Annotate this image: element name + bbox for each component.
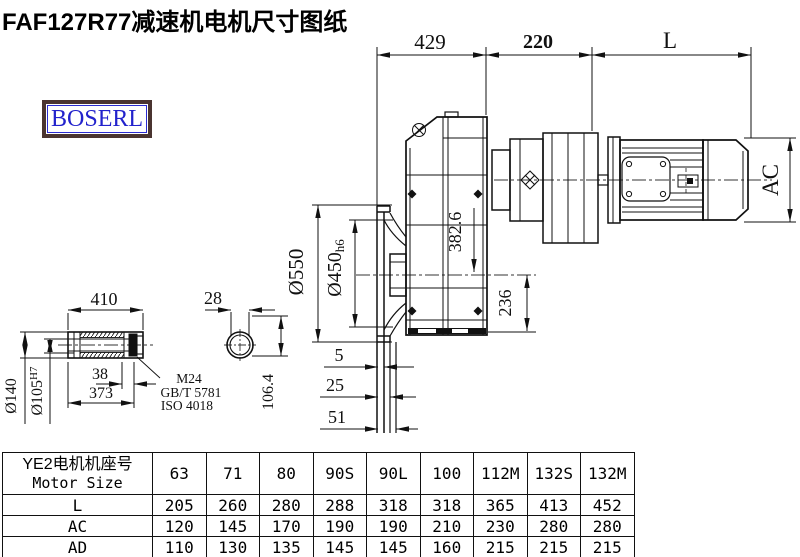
table-row-AD: AD 110 130 135 145 145 160 215 215 215	[3, 537, 635, 557]
hollow-shaft-detail	[68, 332, 160, 378]
row-label-L: L	[3, 495, 153, 516]
col-90S: 90S	[313, 453, 367, 495]
col-71: 71	[206, 453, 260, 495]
col-112M: 112M	[474, 453, 528, 495]
cell: 160	[420, 537, 474, 557]
dim-106-4: 106.4	[260, 374, 277, 410]
dim-236: 236	[495, 290, 515, 317]
input-adapter	[492, 133, 608, 243]
cell: 120	[153, 516, 207, 537]
dim-105H7: Ø105H7	[28, 366, 46, 416]
dim-AC: AC	[758, 164, 783, 196]
dim-450h6: Ø450h6	[324, 239, 347, 297]
cell: 170	[260, 516, 314, 537]
cell: 135	[260, 537, 314, 557]
cell: 215	[581, 537, 635, 557]
dim-5: 5	[335, 345, 344, 365]
row-label-AC: AC	[3, 516, 153, 537]
cell: 280	[527, 516, 581, 537]
cell: 288	[313, 495, 367, 516]
cell: 145	[367, 537, 421, 557]
table-row-AC: AC 120 145 170 190 190 210 230 280 280	[3, 516, 635, 537]
cell: 413	[527, 495, 581, 516]
cell: 110	[153, 537, 207, 557]
cell: 205	[153, 495, 207, 516]
dim-220: 220	[523, 31, 553, 53]
cell: 190	[313, 516, 367, 537]
dim-373: 373	[89, 385, 113, 402]
cell: 452	[581, 495, 635, 516]
header-motor-size: YE2电机机座号 Motor Size	[3, 453, 153, 495]
col-132S: 132S	[527, 453, 581, 495]
cell: 260	[206, 495, 260, 516]
dim-L: L	[663, 28, 677, 53]
cell: 230	[474, 516, 528, 537]
cell: 318	[420, 495, 474, 516]
cell: 318	[367, 495, 421, 516]
col-132M: 132M	[581, 453, 635, 495]
dim-28: 28	[204, 288, 222, 308]
cell: 280	[260, 495, 314, 516]
label-ISO-4018: ISO 4018	[161, 398, 213, 413]
cell: 215	[527, 537, 581, 557]
dim-140: Ø140	[3, 378, 20, 414]
cell: 210	[420, 516, 474, 537]
cell: 190	[367, 516, 421, 537]
dimension-arrows	[22, 52, 792, 431]
cell: 145	[313, 537, 367, 557]
cell: 145	[206, 516, 260, 537]
cell: 215	[474, 537, 528, 557]
dim-550: Ø550	[284, 249, 308, 296]
dim-382-6: 382.6	[445, 212, 465, 253]
col-100: 100	[420, 453, 474, 495]
cell: 365	[474, 495, 528, 516]
cell: 280	[581, 516, 635, 537]
label-M24: M24	[176, 371, 202, 386]
drawing-sheet: FAF127R77减速机电机尺寸图纸 BOSERL	[0, 0, 800, 557]
dim-51: 51	[328, 407, 346, 427]
dim-410: 410	[91, 289, 118, 309]
dim-25: 25	[326, 375, 344, 395]
table-row-L: L 205 260 280 288 318 318 365 413 452	[3, 495, 635, 516]
cell: 130	[206, 537, 260, 557]
dim-38: 38	[92, 366, 108, 383]
dimension-lines	[20, 47, 796, 429]
col-80: 80	[260, 453, 314, 495]
dim-429: 429	[414, 30, 446, 54]
col-90L: 90L	[367, 453, 421, 495]
row-label-AD: AD	[3, 537, 153, 557]
col-63: 63	[153, 453, 207, 495]
motor-size-table: YE2电机机座号 Motor Size 63 71 80 90S 90L 100…	[2, 452, 635, 557]
table-header-row: YE2电机机座号 Motor Size 63 71 80 90S 90L 100…	[3, 453, 635, 495]
